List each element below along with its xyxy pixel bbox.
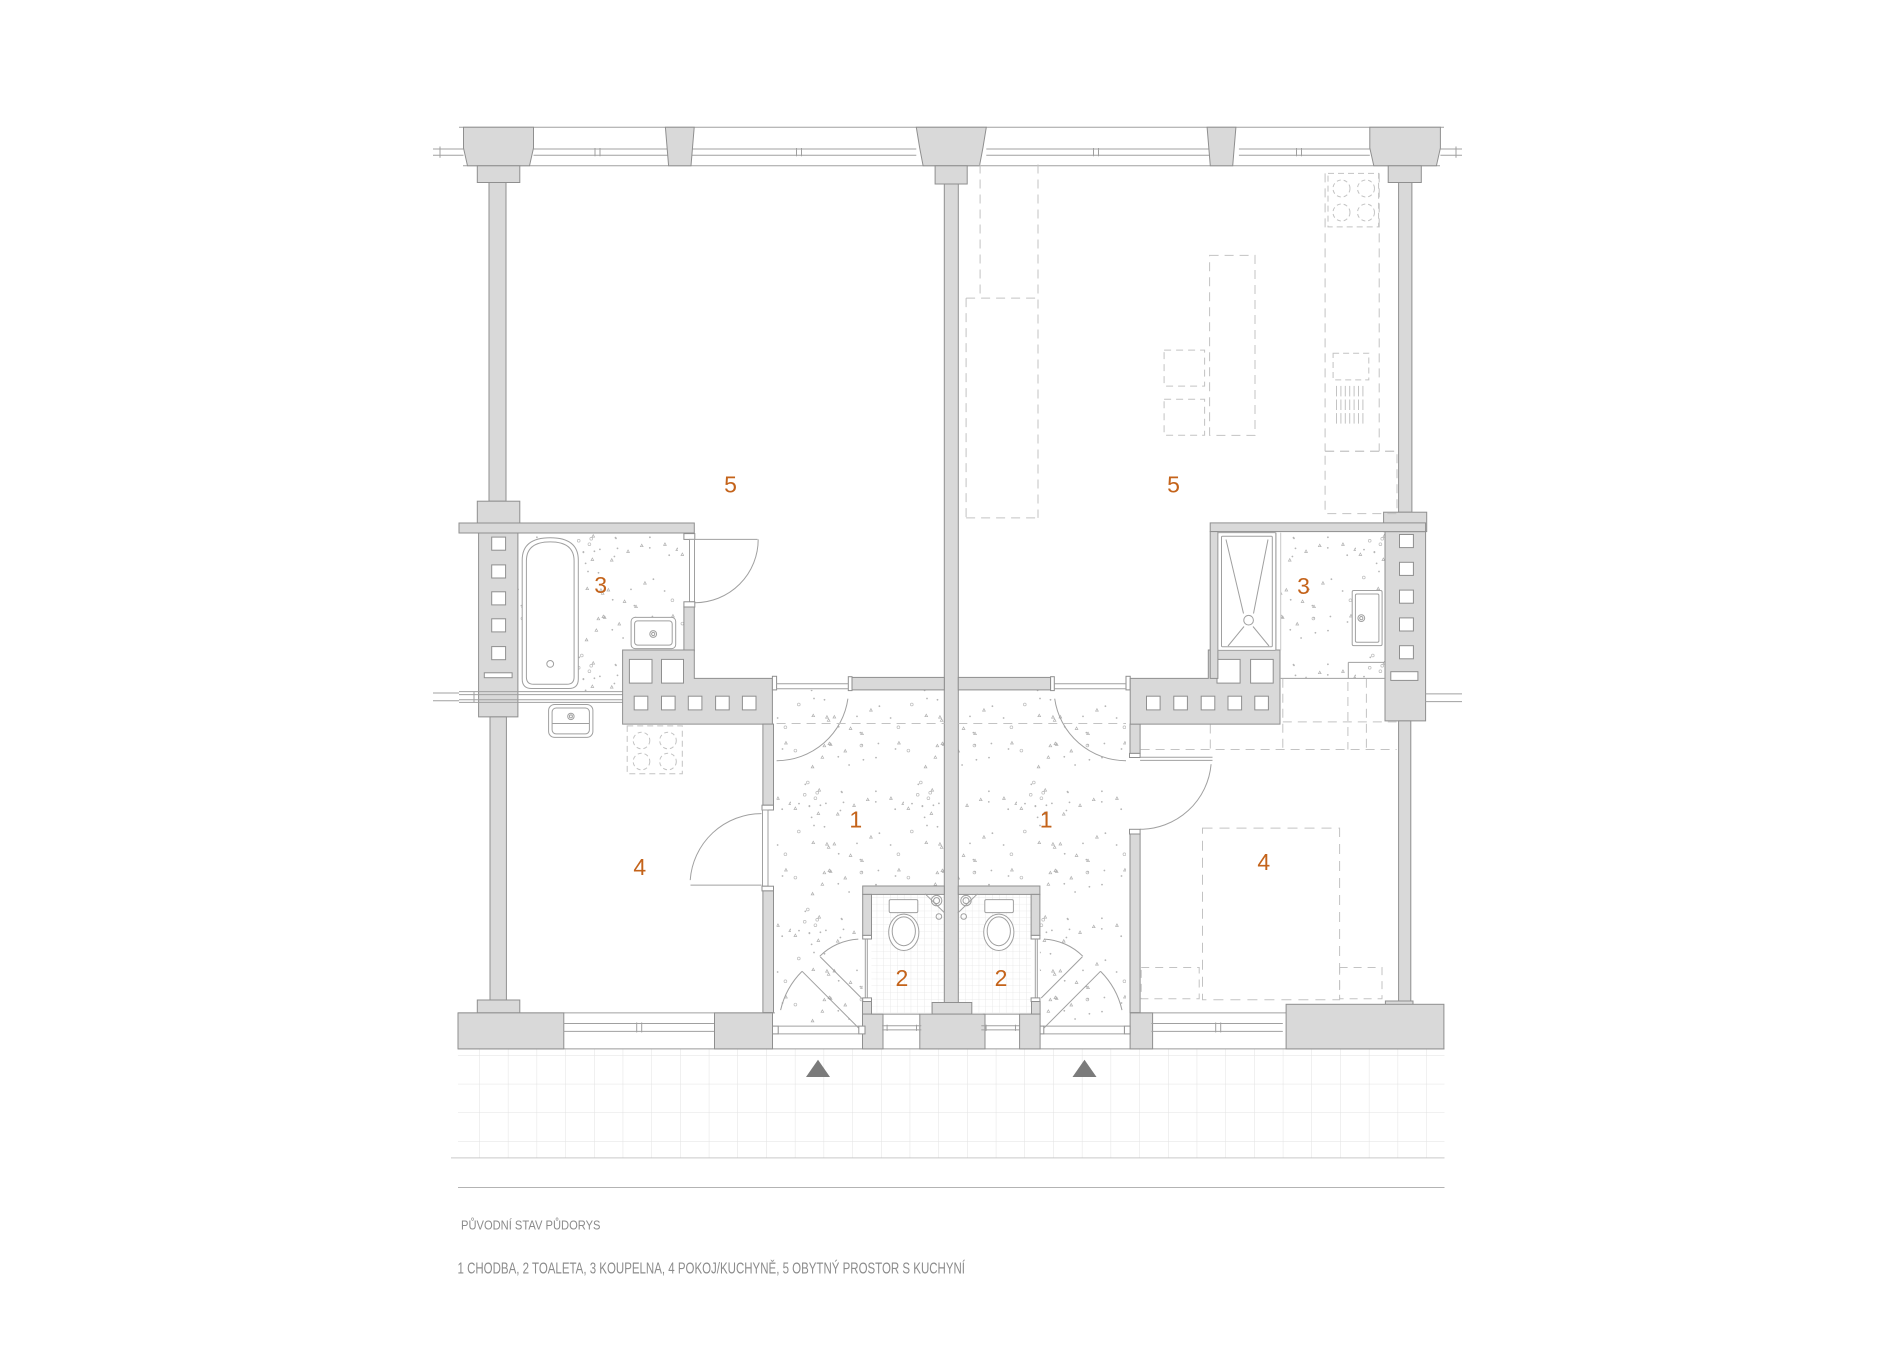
svg-text:1: 1 — [1040, 807, 1053, 833]
svg-text:3: 3 — [594, 572, 607, 598]
svg-text:2: 2 — [896, 965, 909, 991]
svg-text:3: 3 — [1297, 573, 1310, 599]
svg-text:PŮVODNÍ STAV PŮDORYS: PŮVODNÍ STAV PŮDORYS — [461, 1218, 601, 1233]
svg-text:1 CHODBA, 2 TOALETA, 3 KOUPELN: 1 CHODBA, 2 TOALETA, 3 KOUPELNA, 4 POKOJ… — [458, 1259, 966, 1278]
svg-text:4: 4 — [1257, 849, 1270, 875]
svg-text:2: 2 — [995, 965, 1008, 991]
svg-text:1: 1 — [849, 807, 862, 833]
svg-text:5: 5 — [724, 472, 737, 498]
svg-text:5: 5 — [1167, 472, 1180, 498]
svg-text:4: 4 — [633, 854, 646, 880]
